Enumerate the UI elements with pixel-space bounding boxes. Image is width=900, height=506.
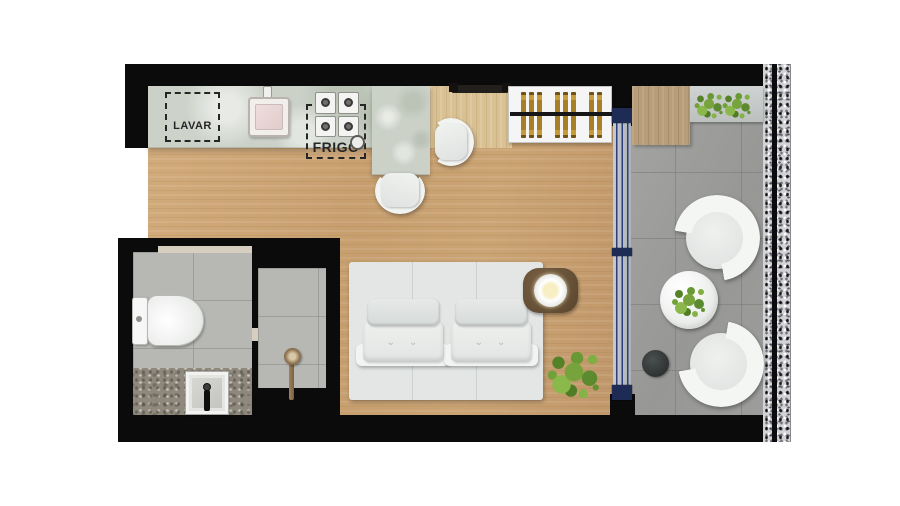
washing-machine-space: LAVAR	[165, 92, 220, 142]
burner-icon	[315, 92, 336, 114]
shower-head	[284, 348, 301, 365]
cooktop-icon	[315, 92, 359, 137]
clothes-rail	[510, 112, 616, 116]
plant-shelf	[690, 86, 763, 122]
lavar-label: LAVAR	[173, 120, 212, 140]
balcony-armchair	[678, 321, 764, 407]
bathroom-door-threshold	[158, 246, 252, 253]
burner-icon	[338, 116, 359, 138]
kitchen-sink-basin	[255, 104, 283, 130]
deck-cabinet	[632, 86, 690, 145]
wall-bottom	[118, 415, 763, 442]
vanity-faucet	[204, 390, 210, 411]
door-frame-top	[612, 108, 632, 123]
sofa-pillow	[367, 299, 439, 326]
sofa-pillow	[455, 299, 527, 326]
burner-icon	[338, 92, 359, 114]
table-lamp	[534, 274, 567, 307]
bar-stool-right	[428, 118, 474, 166]
door-frame-mid	[612, 248, 632, 256]
kitchen-sink	[248, 97, 290, 137]
stool-seat	[381, 173, 419, 207]
toilet	[147, 295, 204, 346]
entry-door	[452, 85, 508, 93]
toilet-flush-button	[136, 316, 142, 322]
wall-door-bottom	[610, 394, 635, 442]
shelf-plant	[732, 99, 742, 109]
textured-facade-strip	[763, 64, 791, 442]
door-frame-bottom	[612, 385, 632, 400]
floor-plan: LAVAR FRIGO	[0, 0, 900, 506]
shower-door-gap	[252, 328, 258, 341]
shelf-plant	[704, 99, 714, 109]
cooktop-knob-icon	[350, 135, 365, 150]
sofa-seat: ⌄⌄	[363, 322, 443, 362]
stool-seat	[435, 124, 467, 160]
dark-planter	[642, 350, 669, 377]
armchair-back	[674, 195, 760, 281]
door-hinge	[449, 83, 458, 92]
burner-icon	[315, 116, 336, 138]
sofa-seat: ⌄⌄	[451, 322, 531, 362]
facade-core-line	[772, 64, 777, 442]
table-plant	[683, 294, 695, 306]
shower-arm	[289, 360, 294, 400]
bar-stool-bottom	[375, 168, 425, 214]
side-table	[523, 268, 578, 313]
potted-plant	[565, 363, 584, 382]
armchair-back	[678, 321, 764, 407]
wall-top	[125, 64, 765, 86]
balcony-armchair	[674, 195, 760, 281]
kitchen-peninsula	[372, 86, 430, 175]
